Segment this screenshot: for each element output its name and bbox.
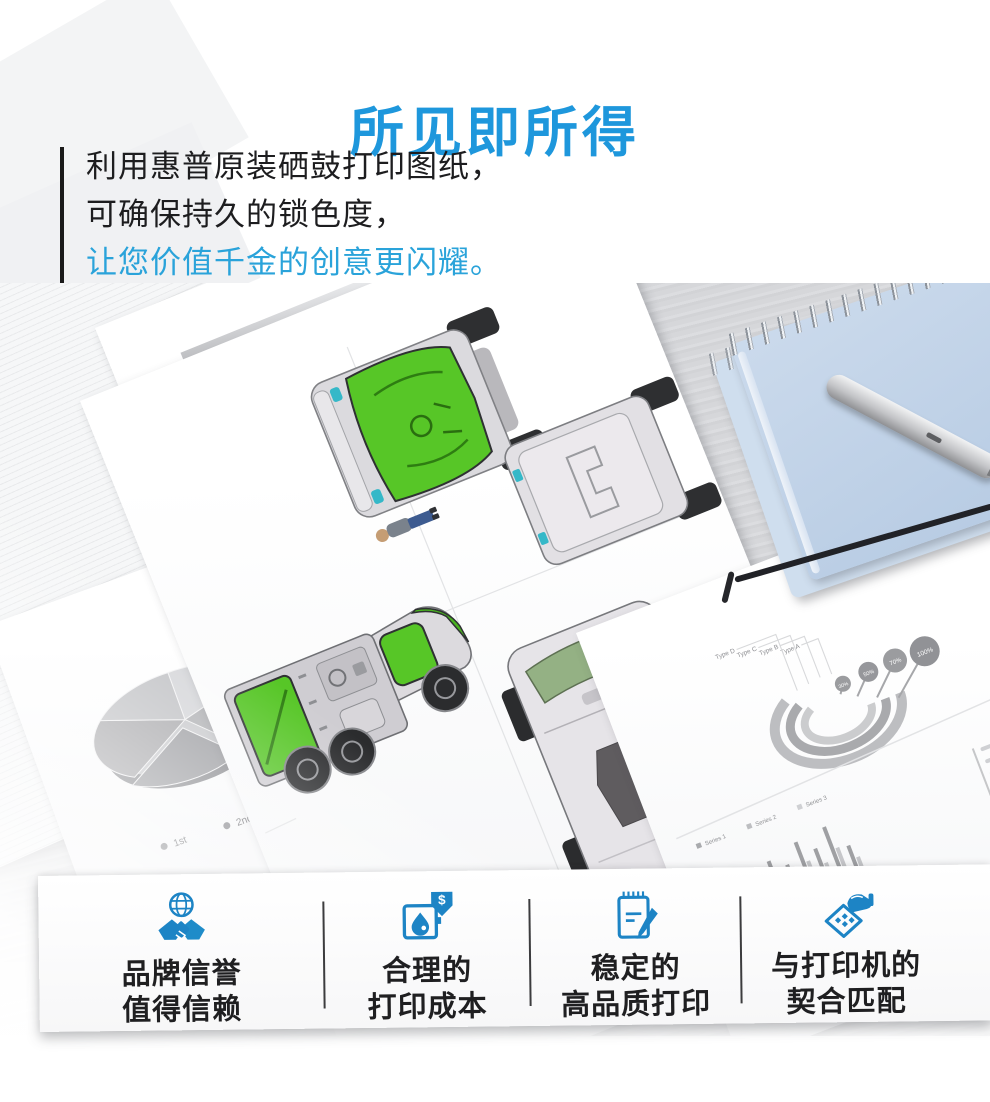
feature-label-line2: 契合匹配 [786,983,906,1020]
type-label: Type C [736,645,758,659]
series-legend: Series 1 [704,834,727,848]
feature-quality: 稳定的 高品质打印 [529,867,742,1026]
lorem-text-block [972,712,990,830]
series-legend: Series 2 [755,814,778,828]
intro-line-1: 利用惠普原装硒鼓打印图纸， [86,143,786,191]
intro-line-2: 可确保持久的锁色度， [86,191,786,239]
text-accent-bar [60,147,64,285]
truck-side-view [221,596,499,810]
promo-banner: 所见即所得 利用惠普原装硒鼓打印图纸， 可确保持久的锁色度， 让您价值千金的创意… [0,0,990,1102]
globe-handshake-icon [150,890,213,953]
features-card: 品牌信誉 值得信赖 $ 合理的 打印成本 [38,864,990,1032]
truck-front-view [304,305,551,529]
feature-label-line1: 品牌信誉 [121,956,241,993]
feature-brand: 品牌信誉 值得信赖 [38,873,325,1032]
type-label: Type D [714,647,736,661]
pen-clip [926,432,942,444]
feature-label-line1: 稳定的 [590,950,680,987]
type-label: Type B [758,644,779,658]
feature-cost: $ 合理的 打印成本 [323,870,531,1029]
feature-label-line2: 高品质打印 [561,986,711,1024]
feature-match: 与打印机的 契合匹配 [740,865,952,1024]
intro-line-3: 让您价值千金的创意更闪耀。 [86,239,786,287]
intro-copy: 利用惠普原装硒鼓打印图纸， 可确保持久的锁色度， 让您价值千金的创意更闪耀。 [86,143,786,287]
toner-hand-icon [814,882,877,945]
feature-label-line1: 与打印机的 [771,947,921,985]
ink-drop-dollar-icon: $ [395,887,458,950]
pie-legend-1: 1st [172,835,189,850]
svg-text:$: $ [438,892,446,907]
notepad-pencil-icon [604,884,667,947]
feature-label-line2: 打印成本 [367,989,487,1026]
feature-label-line2: 值得信赖 [122,992,242,1029]
feature-label-line1: 合理的 [382,953,472,990]
series-legend: Series 3 [805,795,828,809]
